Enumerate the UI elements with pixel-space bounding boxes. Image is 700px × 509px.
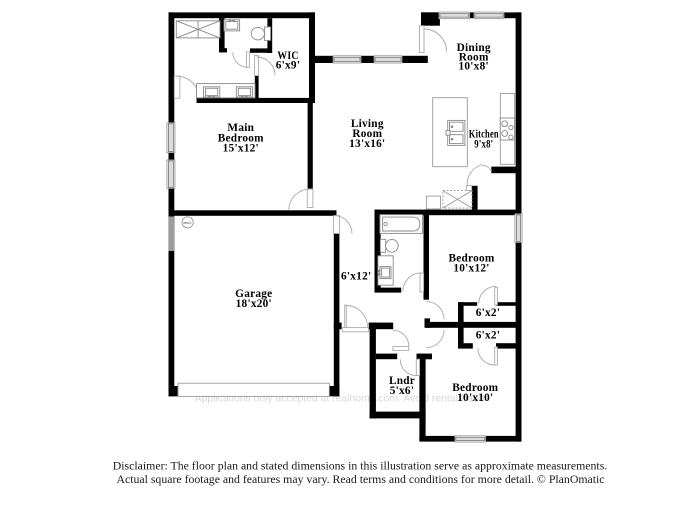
svg-text:6'x12': 6'x12' xyxy=(341,270,371,282)
svg-text:10'x12': 10'x12' xyxy=(453,263,489,275)
svg-text:Actual square footage and feat: Actual square footage and features may v… xyxy=(116,472,604,486)
svg-text:18'x20': 18'x20' xyxy=(236,298,272,310)
svg-text:6'x9': 6'x9' xyxy=(276,60,300,72)
svg-text:10'x10': 10'x10' xyxy=(457,392,493,404)
svg-text:6'x2': 6'x2' xyxy=(476,330,500,342)
svg-text:5'x6': 5'x6' xyxy=(390,385,414,397)
svg-text:15'x12': 15'x12' xyxy=(223,142,259,154)
svg-text:6'x2': 6'x2' xyxy=(476,307,500,319)
svg-text:Disclaimer: The floor plan and: Disclaimer: The floor plan and stated di… xyxy=(113,459,608,473)
svg-text:10'x8': 10'x8' xyxy=(459,60,489,72)
svg-text:9'x8': 9'x8' xyxy=(474,138,493,150)
svg-text:13'x16': 13'x16' xyxy=(349,138,385,150)
svg-text:HWC: HWC xyxy=(183,221,192,225)
